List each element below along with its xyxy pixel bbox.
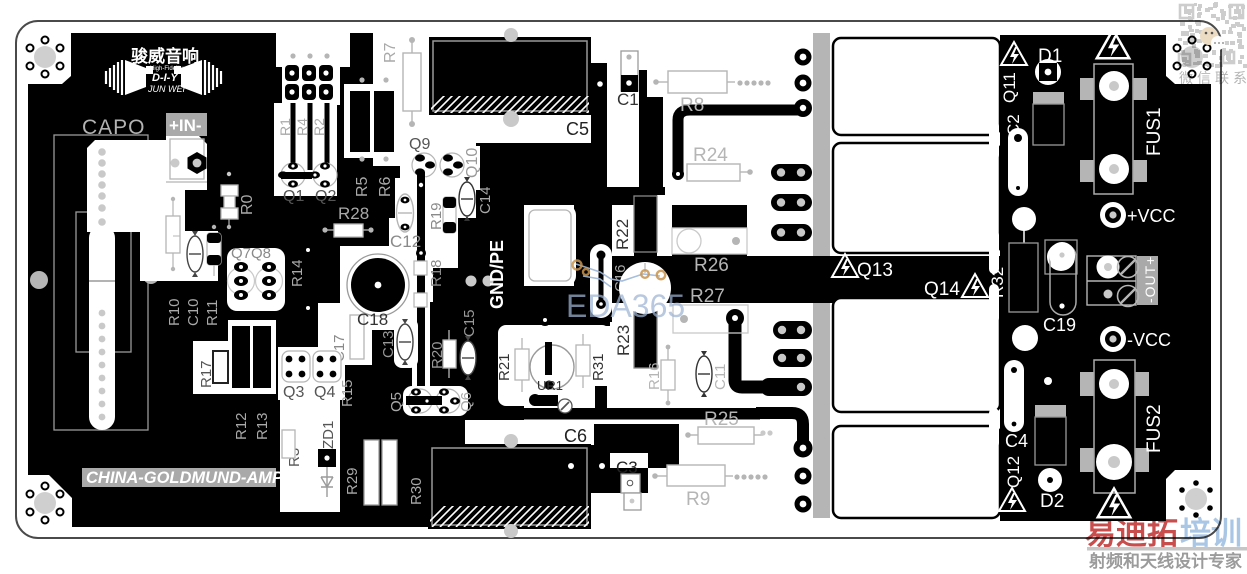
svg-text:C14: C14 — [477, 186, 494, 214]
svg-text:D2: D2 — [1040, 491, 1064, 512]
svg-text:R9: R9 — [686, 489, 710, 510]
svg-text:R21: R21 — [496, 353, 513, 381]
svg-text:-VCC: -VCC — [1127, 330, 1171, 350]
svg-text:C13: C13 — [380, 330, 397, 358]
svg-text:微信联系: 微信联系 — [1179, 70, 1247, 86]
svg-text:R18: R18 — [428, 259, 445, 287]
svg-text:Q4: Q4 — [314, 384, 335, 401]
svg-text:R6: R6 — [377, 176, 394, 197]
svg-text:C1: C1 — [617, 90, 639, 109]
svg-text:R1: R1 — [277, 118, 293, 136]
svg-text:R30: R30 — [408, 477, 425, 505]
svg-text:Q3: Q3 — [283, 384, 304, 401]
svg-text:R31: R31 — [590, 353, 607, 381]
svg-text:UR1: UR1 — [537, 378, 563, 393]
svg-text:R14: R14 — [289, 259, 306, 287]
svg-text:+IN-: +IN- — [169, 116, 202, 135]
svg-text:EDA365: EDA365 — [566, 288, 685, 324]
svg-text:R5: R5 — [354, 176, 371, 197]
svg-text:易迪拓: 易迪拓 — [1085, 516, 1178, 551]
svg-text:Q13: Q13 — [857, 260, 893, 281]
svg-text:R7: R7 — [382, 42, 399, 63]
svg-text:R22: R22 — [613, 219, 632, 250]
svg-text:R15: R15 — [339, 379, 356, 407]
svg-text:Q1: Q1 — [283, 188, 304, 205]
svg-text:Q14: Q14 — [924, 279, 960, 300]
svg-text:C6: C6 — [564, 426, 587, 446]
svg-text:培训: 培训 — [1180, 516, 1242, 551]
svg-text:Q11: Q11 — [1000, 72, 1019, 103]
svg-text:R13: R13 — [254, 412, 271, 440]
svg-text:C11: C11 — [712, 364, 729, 390]
svg-text:D-I-Y: D-I-Y — [152, 72, 179, 84]
svg-text:骏威音响: 骏威音响 — [131, 46, 199, 66]
svg-text:射频和天线设计专家: 射频和天线设计专家 — [1088, 551, 1242, 571]
svg-text:R28: R28 — [338, 204, 369, 223]
svg-text:GND/PE: GND/PE — [487, 240, 507, 309]
svg-text:R27: R27 — [690, 286, 725, 307]
svg-text:C5: C5 — [566, 119, 589, 139]
svg-text:JUN WEI: JUN WEI — [147, 84, 185, 94]
svg-text:C12: C12 — [390, 232, 421, 251]
svg-text:Q12: Q12 — [1004, 456, 1023, 488]
svg-text:R20: R20 — [429, 341, 446, 369]
svg-text:C15: C15 — [461, 309, 478, 337]
svg-text:R8: R8 — [680, 95, 704, 116]
svg-text:R24: R24 — [693, 145, 728, 166]
svg-text:C10: C10 — [185, 298, 202, 326]
svg-text:-OUT+: -OUT+ — [1142, 256, 1158, 303]
svg-text:CHINA-GOLDMUND-AMP: CHINA-GOLDMUND-AMP — [86, 469, 284, 487]
svg-text:+VCC: +VCC — [1127, 206, 1176, 226]
svg-text:R0: R0 — [239, 194, 256, 215]
svg-text:C4: C4 — [1005, 431, 1028, 451]
svg-text:R19: R19 — [428, 202, 445, 230]
svg-text:Q10: Q10 — [464, 148, 481, 178]
svg-text:Q5: Q5 — [388, 392, 405, 412]
svg-text:C18: C18 — [357, 310, 388, 329]
svg-text:R26: R26 — [694, 255, 729, 276]
svg-text:Q2: Q2 — [315, 188, 336, 205]
svg-text:Q7Q8: Q7Q8 — [231, 245, 271, 262]
svg-text:R2: R2 — [311, 118, 327, 136]
svg-text:C19: C19 — [1043, 315, 1076, 335]
svg-text:R11: R11 — [204, 300, 221, 326]
svg-text:R32: R32 — [988, 267, 1007, 298]
svg-text:R10: R10 — [166, 298, 183, 326]
svg-text:R16: R16 — [646, 362, 663, 390]
svg-text:ZD1: ZD1 — [320, 421, 337, 449]
svg-text:R4: R4 — [294, 118, 310, 136]
svg-text:FUS1: FUS1 — [1144, 107, 1165, 156]
svg-text:R12: R12 — [233, 412, 250, 440]
svg-text:FUS2: FUS2 — [1144, 404, 1165, 453]
svg-text:Q9: Q9 — [409, 136, 430, 153]
svg-text:R29: R29 — [344, 467, 361, 495]
svg-text:R23: R23 — [614, 325, 633, 356]
svg-text:Q6: Q6 — [458, 392, 475, 412]
